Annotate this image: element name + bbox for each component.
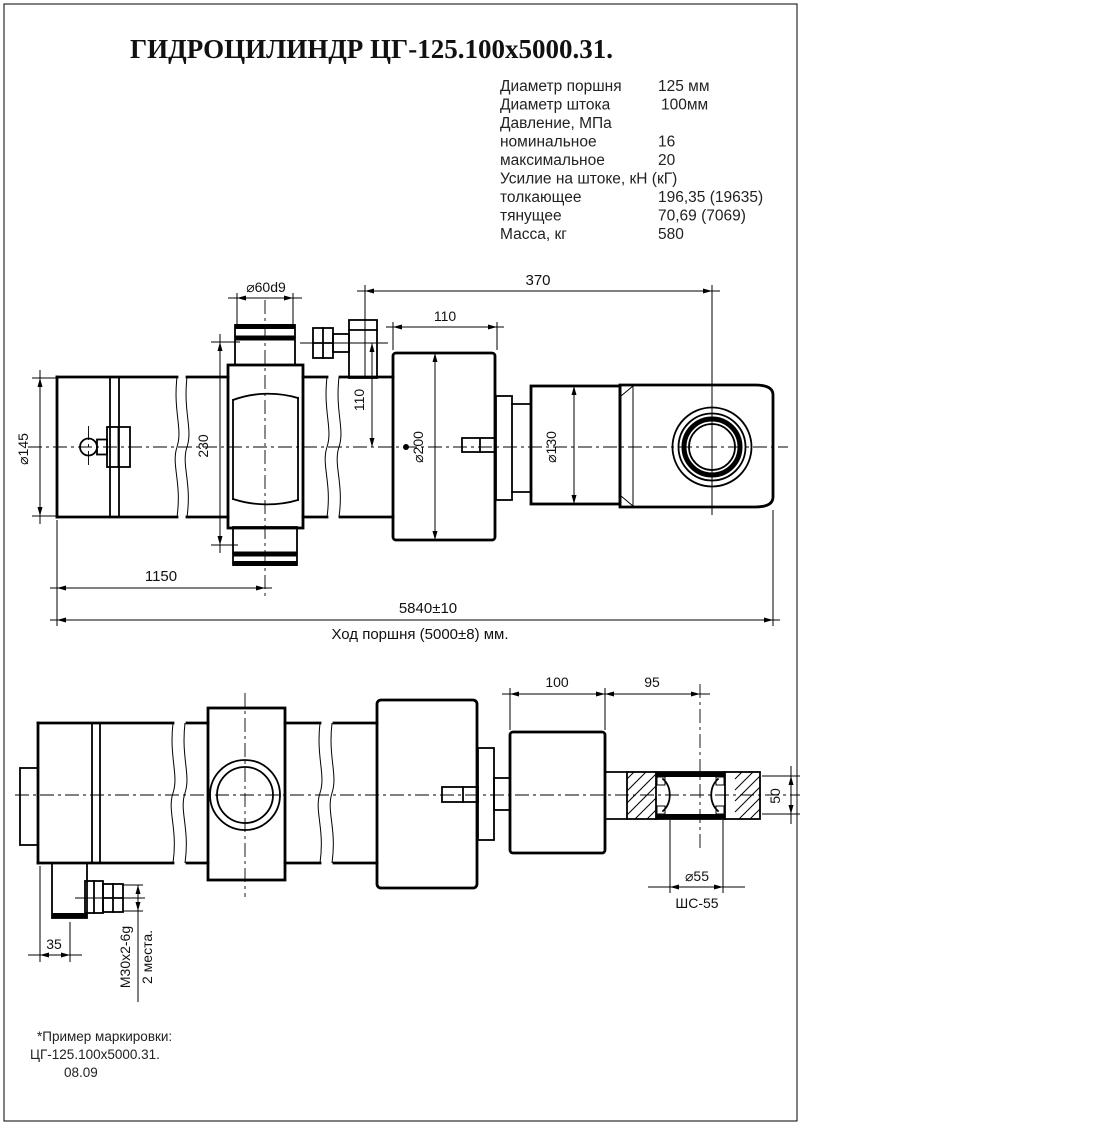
dim-230: 230 [195,434,211,458]
spec-table: Диаметр поршня 125 мм Диаметр штока 100м… [500,78,763,243]
dim-phi200: ⌀200 [410,431,426,463]
dim-110-side: 110 [351,389,367,412]
rear-leg-and-port [52,863,145,918]
center-boss [208,708,285,880]
places-label: 2 места. [139,930,155,984]
sleeve-curve [233,499,298,504]
dim-phi130: ⌀130 [543,431,559,463]
spec-label: Масса, кг [500,226,567,243]
footer-line2: ЦГ-125.100х5000.31. [30,1047,160,1062]
rod-section [478,732,627,853]
rod-collar [496,396,512,500]
footer-line1: *Пример маркировки: [37,1029,172,1044]
hydraulic-cylinder-drawing: ГИДРОЦИЛИНДР ЦГ-125.100х5000.31. Диаметр… [0,0,1109,1127]
dim-95: 95 [644,674,660,690]
spec-label: максимальное [500,152,605,169]
bearing-label: ШС-55 [675,895,718,911]
rod-end-block [510,732,605,853]
spec-value: 16 [658,134,675,151]
dim-100: 100 [545,674,569,690]
drawing-page: ГИДРОЦИЛИНДР ЦГ-125.100х5000.31. Диаметр… [0,0,1109,1127]
rear-cap-step [20,768,38,845]
spec-label: Давление, МПа [500,115,612,132]
drawing-title: ГИДРОЦИЛИНДР ЦГ-125.100х5000.31. [130,34,613,64]
footer-line3: 08.09 [64,1065,98,1080]
side-hex-fitting [300,320,388,378]
spec-value: 20 [658,152,676,169]
dim-370: 370 [525,272,550,289]
thread-label: М30х2-6g [117,926,133,988]
break-line [318,723,322,863]
spec-label: тянущее [500,208,562,225]
eye-section [627,772,760,819]
dim-5840: 5840±10 [399,600,457,617]
rod-eye [620,385,773,507]
rod-stub [494,778,510,810]
gland-block [377,700,478,888]
dim-50: 50 [767,788,783,804]
spec-label: Диаметр штока [500,97,611,114]
bottom-view: 100 95 50 ⌀55 ШС-55 35 [15,674,800,1002]
top-view: ⌀60d9 370 110 110 ⌀200 [15,272,788,643]
gland-port [442,787,478,802]
rod-collar [478,748,494,840]
dim-leader-dot [403,444,409,450]
cylinder-tube [20,723,377,863]
dim-phi145: ⌀145 [15,433,31,465]
spec-value: 100мм [661,97,708,114]
spec-label: толкающее [500,189,581,206]
spec-label: номинальное [500,134,597,151]
break-line [183,723,187,863]
gland-port [462,438,495,452]
spec-value: 196,35 (19635) [658,189,763,206]
break-line [171,723,175,863]
stroke-note: Ход поршня (5000±8) мм. [331,626,508,643]
spec-value: 70,69 (7069) [658,208,746,225]
dim-1150: 1150 [145,568,177,585]
center-boss [228,325,303,565]
break-line [330,723,334,863]
hatch-right [735,772,760,819]
dim-35: 35 [46,936,62,952]
spec-value: 125 мм [658,78,709,95]
sleeve-curve [233,394,298,400]
dim-110-top: 110 [434,308,457,324]
dim-phi55: ⌀55 [685,868,709,884]
rear-leg [52,863,87,918]
spec-value: 580 [658,226,684,243]
hatch-left [627,772,656,819]
footer-note: *Пример маркировки: ЦГ-125.100х5000.31. … [30,1029,172,1080]
dim-phi60d9: ⌀60d9 [246,279,286,295]
spec-label: Усилие на штоке, кН (кГ) [500,171,677,188]
spec-label: Диаметр поршня [500,78,622,95]
